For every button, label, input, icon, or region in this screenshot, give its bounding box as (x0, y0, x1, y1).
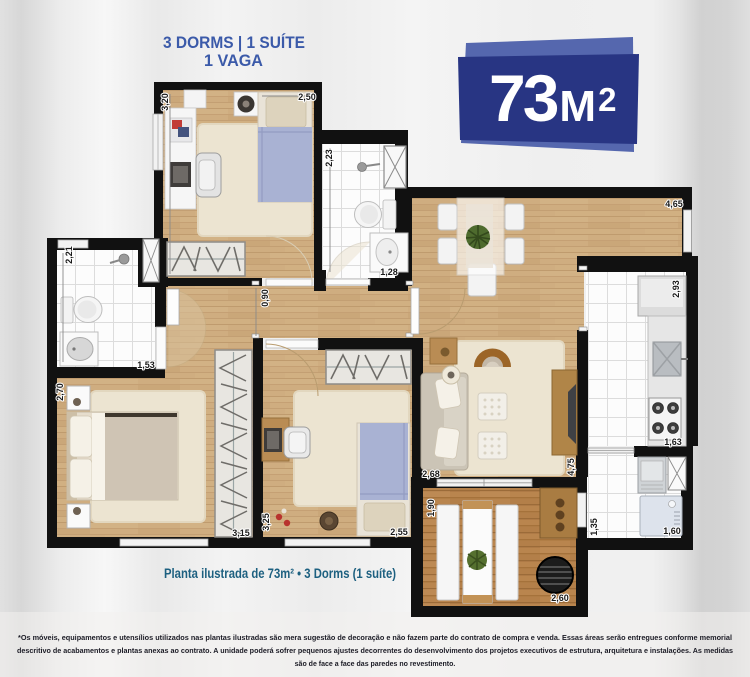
svg-text:são de face a face das paredes: são de face a face das paredes no revest… (295, 661, 456, 668)
svg-text:2,93: 2,93 (671, 280, 681, 298)
svg-text:3,25: 3,25 (261, 513, 271, 531)
svg-text:2,21: 2,21 (64, 246, 74, 264)
svg-text:1,35: 1,35 (589, 518, 599, 536)
svg-text:2,70: 2,70 (55, 383, 65, 401)
svg-text:2,60: 2,60 (551, 593, 569, 603)
svg-text:1 VAGA: 1 VAGA (204, 51, 263, 70)
svg-text:4,75: 4,75 (566, 458, 576, 476)
svg-text:1,28: 1,28 (380, 267, 398, 277)
svg-text:*Os móveis, equipamentos e ute: *Os móveis, equipamentos e utensílios ut… (18, 635, 732, 642)
svg-text:2,23: 2,23 (324, 149, 334, 167)
svg-text:3,20: 3,20 (160, 93, 170, 111)
svg-text:1,60: 1,60 (663, 526, 681, 536)
svg-text:Planta ilustrada de 73m² • 3 D: Planta ilustrada de 73m² • 3 Dorms (1 su… (164, 566, 396, 581)
svg-text:3 DORMS | 1 SUÍTE: 3 DORMS | 1 SUÍTE (163, 33, 305, 52)
svg-text:1,63: 1,63 (664, 437, 682, 447)
svg-text:2,55: 2,55 (390, 527, 408, 537)
svg-text:2,68: 2,68 (422, 469, 440, 479)
svg-text:4,65: 4,65 (665, 199, 683, 209)
svg-text:3,15: 3,15 (232, 528, 250, 538)
svg-text:1,53: 1,53 (137, 360, 155, 370)
svg-text:descritivo de acabamentos e pl: descritivo de acabamentos e plantas anex… (17, 648, 733, 655)
svg-text:1,90: 1,90 (426, 499, 436, 517)
svg-text:2,50: 2,50 (298, 92, 316, 102)
svg-text:0,90: 0,90 (260, 289, 270, 307)
